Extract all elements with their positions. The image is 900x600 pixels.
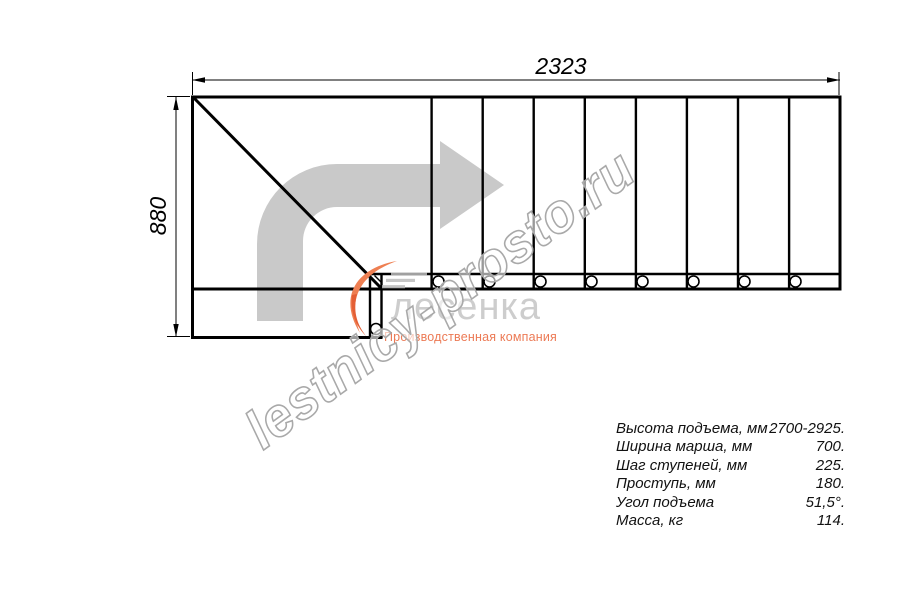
spec-value: 2700-2925. (769, 420, 845, 438)
spec-label: Высота подъема, мм (616, 420, 768, 438)
spec-table: Высота подъема, мм 2700-2925. Ширина мар… (616, 420, 845, 530)
spec-row: Угол подъема 51,5°. (616, 494, 845, 512)
dimension-width: 2323 (192, 53, 840, 95)
spec-value: 700. (816, 438, 845, 456)
step-mount-circle (637, 276, 648, 287)
spec-row: Шаг ступеней, мм 225. (616, 457, 845, 475)
dimension-width-label: 2323 (534, 53, 586, 79)
spec-label: Ширина марша, мм (616, 438, 752, 456)
dimension-height-label: 880 (145, 197, 171, 236)
spec-row: Проступь, мм 180. (616, 475, 845, 493)
spec-label: Масса, кг (616, 512, 683, 530)
spec-row: Ширина марша, мм 700. (616, 438, 845, 456)
step-mount-circle (586, 276, 597, 287)
step-mount-circle (688, 276, 699, 287)
staircase-drawing-page: 2323 880 лесенка Производственная компан… (0, 0, 900, 600)
spec-value: 114. (817, 512, 845, 530)
spec-value: 51,5°. (806, 494, 845, 512)
dimension-height: 880 (145, 97, 190, 338)
spec-label: Шаг ступеней, мм (616, 457, 747, 475)
spec-value: 225. (816, 457, 845, 475)
spec-row: Высота подъема, мм 2700-2925. (616, 420, 845, 438)
spec-label: Проступь, мм (616, 475, 716, 493)
step-mount-circle (739, 276, 750, 287)
spec-label: Угол подъема (616, 494, 714, 512)
step-mount-circle (790, 276, 801, 287)
spec-row: Масса, кг 114. (616, 512, 845, 530)
spec-value: 180. (816, 475, 845, 493)
